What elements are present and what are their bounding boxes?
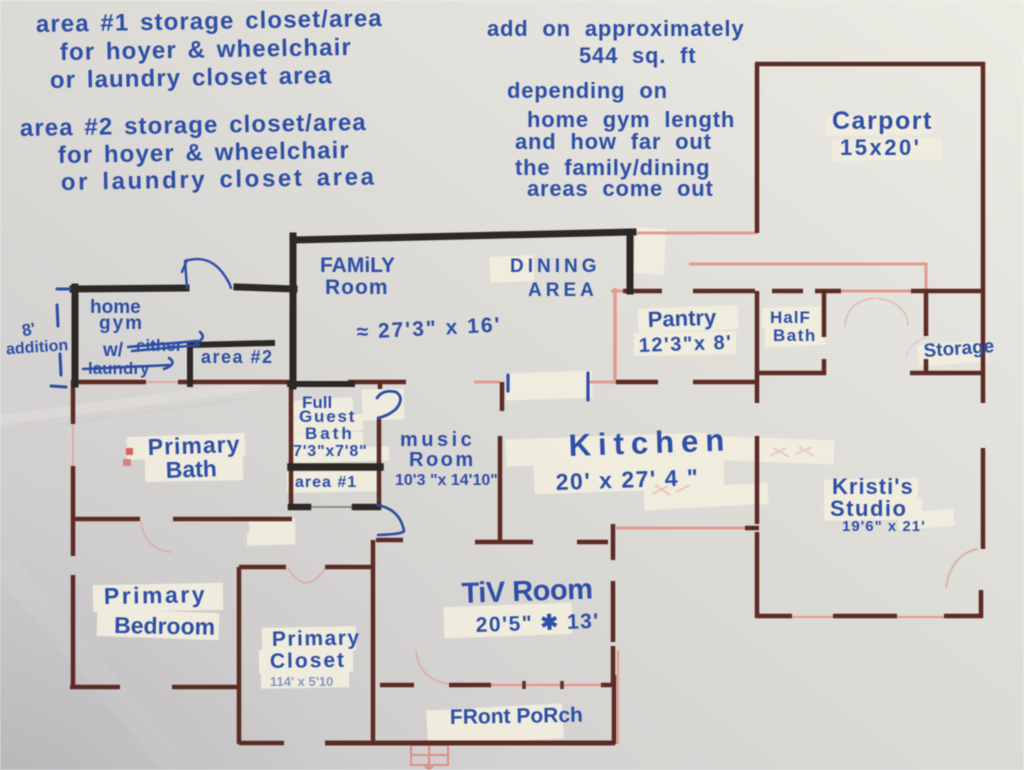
svg-text:and how far out: and how far out [515,129,712,154]
svg-text:Closet: Closet [270,649,347,673]
svg-text:DINING: DINING [510,256,601,277]
svg-text:music: music [400,429,475,451]
svg-text:19'6" x 21': 19'6" x 21' [842,518,926,535]
svg-text:544 sq. ft: 544 sq. ft [579,43,696,68]
svg-text:Bath: Bath [773,326,817,345]
svg-text:114' x 5'10: 114' x 5'10 [270,674,333,689]
svg-text:Pantry: Pantry [647,305,717,332]
svg-text:Bath: Bath [305,424,355,443]
svg-text:Room: Room [409,449,476,471]
svg-text:AREA: AREA [528,280,598,301]
svg-text:12'3"x 8': 12'3"x 8' [638,332,732,357]
svg-text:20'5" ✱ 13': 20'5" ✱ 13' [475,610,600,637]
svg-text:Primary: Primary [104,581,208,609]
svg-text:10'3 "x 14'10": 10'3 "x 14'10" [395,472,498,489]
svg-text:Kitchen: Kitchen [568,422,732,463]
svg-text:or laundry closet area: or laundry closet area [61,163,377,196]
svg-text:TiV Room: TiV Room [461,573,593,610]
svg-text:laundry: laundry [88,359,150,378]
svg-text:or laundry closet area: or laundry closet area [50,62,333,94]
svg-text:7'3"x7'8": 7'3"x7'8" [293,443,367,460]
svg-text:area #1: area #1 [295,474,357,491]
svg-text:Bath: Bath [165,455,217,483]
svg-text:HalF: HalF [770,308,811,327]
svg-text:area #2: area #2 [201,347,274,367]
svg-text:gym: gym [99,313,144,334]
svg-text:Room: Room [325,276,389,299]
svg-text:depending on: depending on [507,78,668,103]
svg-text:either: either [136,336,183,355]
svg-text:Primary: Primary [272,626,361,651]
svg-text:Bedroom: Bedroom [114,612,215,640]
svg-text:FAMiLY: FAMiLY [320,254,395,277]
svg-text:w/: w/ [102,340,124,361]
svg-text:Carport: Carport [832,107,933,135]
svg-text:20' x 27' 4 ": 20' x 27' 4 " [555,464,699,495]
svg-text:areas come out: areas come out [527,176,714,201]
svg-text:15x20': 15x20' [840,135,921,160]
svg-text:add on approximately: add on approximately [487,16,744,41]
svg-text:for hoyer & wheelchair: for hoyer & wheelchair [60,34,352,66]
svg-text:FRont PoRch: FRont PoRch [450,704,583,729]
